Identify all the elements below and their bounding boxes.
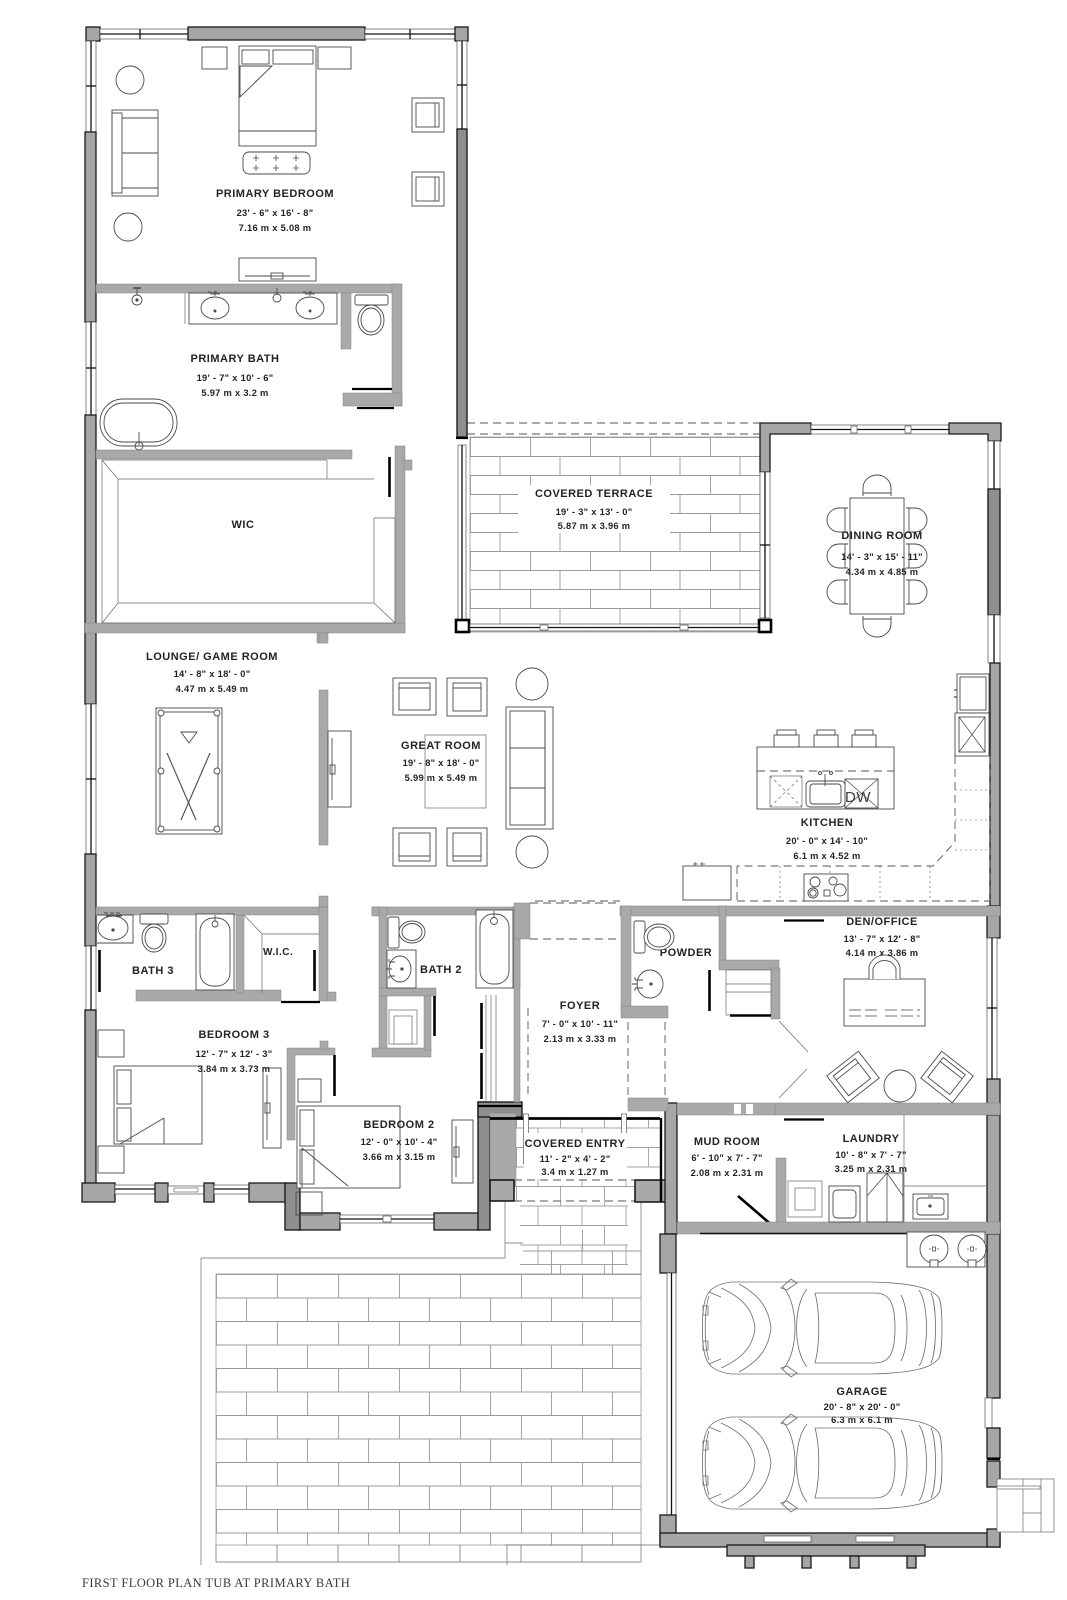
svg-text:FOYER: FOYER xyxy=(560,1000,600,1012)
svg-text:MUD ROOM: MUD ROOM xyxy=(694,1136,760,1148)
svg-text:19' - 7" x 10' - 6": 19' - 7" x 10' - 6" xyxy=(197,373,274,383)
svg-text:LOUNGE/ GAME ROOM: LOUNGE/ GAME ROOM xyxy=(146,651,278,663)
svg-text:DEN/OFFICE: DEN/OFFICE xyxy=(846,916,918,928)
svg-text:12' - 7" x 12' - 3": 12' - 7" x 12' - 3" xyxy=(196,1049,273,1059)
svg-text:11' - 2" x 4' - 2": 11' - 2" x 4' - 2" xyxy=(540,1154,611,1164)
svg-text:19' - 3" x 13' - 0": 19' - 3" x 13' - 0" xyxy=(556,507,633,517)
svg-text:7' - 0" x 10' - 11": 7' - 0" x 10' - 11" xyxy=(542,1019,618,1029)
svg-text:13' - 7" x 12' - 8": 13' - 7" x 12' - 8" xyxy=(844,934,921,944)
svg-text:3.66 m x 3.15 m: 3.66 m x 3.15 m xyxy=(363,1152,436,1162)
svg-text:5.97 m x 3.2 m: 5.97 m x 3.2 m xyxy=(201,388,268,398)
svg-text:BATH 2: BATH 2 xyxy=(420,964,462,976)
svg-text:COVERED ENTRY: COVERED ENTRY xyxy=(525,1138,626,1150)
svg-text:12' - 0" x 10' - 4": 12' - 0" x 10' - 4" xyxy=(361,1137,438,1147)
svg-text:BEDROOM 3: BEDROOM 3 xyxy=(198,1029,269,1041)
svg-text:2.13 m x 3.33 m: 2.13 m x 3.33 m xyxy=(544,1034,617,1044)
svg-text:W.I.C.: W.I.C. xyxy=(263,947,293,958)
svg-text:6.3 m x 6.1 m: 6.3 m x 6.1 m xyxy=(831,1415,893,1425)
svg-text:GARAGE: GARAGE xyxy=(836,1386,887,1398)
svg-text:20' - 8" x 20' - 0": 20' - 8" x 20' - 0" xyxy=(824,1402,901,1412)
svg-text:FIRST FLOOR PLAN TUB AT PRIMAR: FIRST FLOOR PLAN TUB AT PRIMARY BATH xyxy=(82,1576,350,1590)
svg-text:20' - 0" x 14' - 10": 20' - 0" x 14' - 10" xyxy=(786,836,868,846)
svg-text:PRIMARY BEDROOM: PRIMARY BEDROOM xyxy=(216,188,334,200)
svg-text:DINING ROOM: DINING ROOM xyxy=(841,530,922,542)
svg-text:5.87 m x 3.96 m: 5.87 m x 3.96 m xyxy=(558,521,631,531)
svg-text:BEDROOM 2: BEDROOM 2 xyxy=(363,1119,434,1131)
svg-text:GREAT ROOM: GREAT ROOM xyxy=(401,740,481,752)
svg-text:3.25 m x 2.31 m: 3.25 m x 2.31 m xyxy=(835,1164,908,1174)
svg-text:6.1 m x 4.52 m: 6.1 m x 4.52 m xyxy=(793,851,860,861)
svg-text:19' - 8" x 18' - 0": 19' - 8" x 18' - 0" xyxy=(403,758,480,768)
svg-text:POWDER: POWDER xyxy=(660,947,713,959)
svg-text:5.99 m x 5.49 m: 5.99 m x 5.49 m xyxy=(405,773,478,783)
svg-text:PRIMARY BATH: PRIMARY BATH xyxy=(191,353,280,365)
svg-text:14' - 3" x 15' - 11": 14' - 3" x 15' - 11" xyxy=(841,552,923,562)
svg-text:DW: DW xyxy=(845,789,871,806)
svg-text:3.84 m x 3.73 m: 3.84 m x 3.73 m xyxy=(198,1064,271,1074)
svg-text:BATH 3: BATH 3 xyxy=(132,965,174,977)
svg-text:7.16 m x 5.08 m: 7.16 m x 5.08 m xyxy=(239,223,312,233)
svg-text:4.34 m x 4.85 m: 4.34 m x 4.85 m xyxy=(846,567,919,577)
svg-text:2.08 m x 2.31 m: 2.08 m x 2.31 m xyxy=(691,1168,764,1178)
svg-text:COVERED TERRACE: COVERED TERRACE xyxy=(535,488,653,500)
svg-text:10' - 8" x 7' - 7": 10' - 8" x 7' - 7" xyxy=(835,1150,906,1160)
svg-text:WIC: WIC xyxy=(232,519,255,531)
svg-text:6' - 10" x 7' - 7": 6' - 10" x 7' - 7" xyxy=(691,1153,762,1163)
svg-text:LAUNDRY: LAUNDRY xyxy=(843,1133,900,1145)
svg-text:3.4 m x 1.27 m: 3.4 m x 1.27 m xyxy=(541,1167,608,1177)
svg-text:KITCHEN: KITCHEN xyxy=(801,817,853,829)
svg-text:14' - 8" x 18' - 0": 14' - 8" x 18' - 0" xyxy=(174,669,251,679)
svg-text:4.47 m x 5.49 m: 4.47 m x 5.49 m xyxy=(176,684,249,694)
svg-text:23' - 6" x 16' - 8": 23' - 6" x 16' - 8" xyxy=(237,208,314,218)
